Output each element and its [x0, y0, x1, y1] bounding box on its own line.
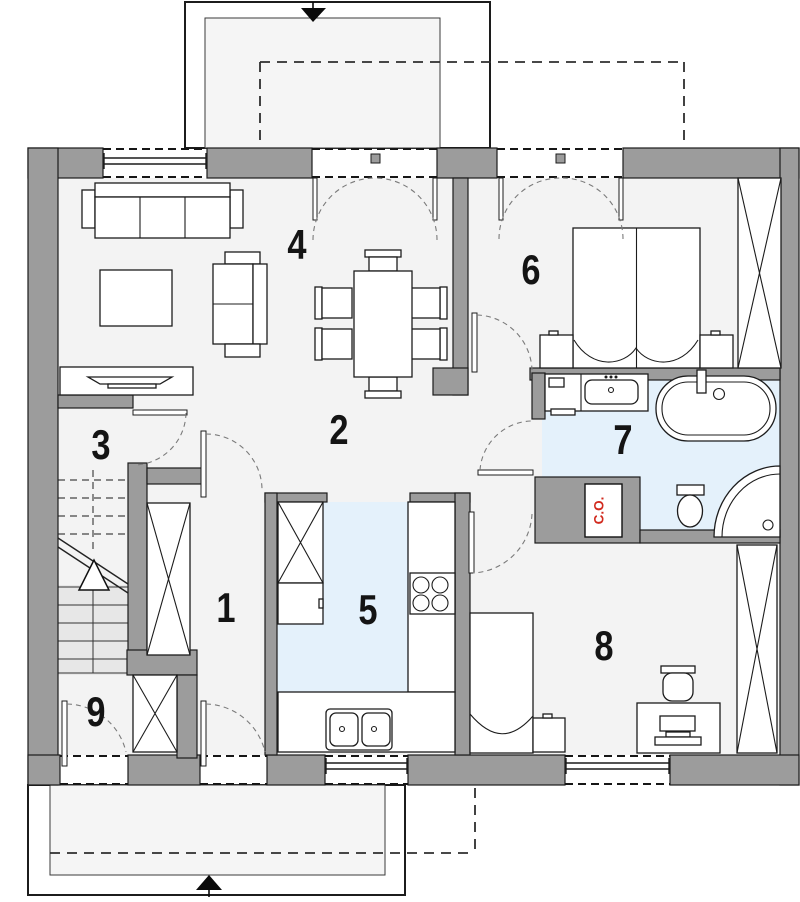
- top-opening-dashes: [103, 149, 623, 177]
- central-partition-wall: [453, 178, 468, 395]
- tub-tap: [697, 370, 706, 393]
- tv: [88, 377, 172, 384]
- terrace-door-knob: [371, 154, 380, 163]
- toilet: [677, 485, 704, 527]
- monitor: [660, 716, 695, 731]
- hob: [410, 573, 455, 614]
- kitchen-window: [325, 758, 408, 774]
- left-exterior-wall: [28, 148, 58, 785]
- nightstand: [700, 335, 733, 368]
- room-label-4: 4: [287, 222, 307, 269]
- top-terrace: [185, 2, 490, 148]
- wardrobe-bedroom6: [738, 178, 781, 368]
- right-exterior-wall: [780, 148, 799, 785]
- desk-chair: [663, 673, 693, 701]
- room-label-9: 9: [86, 689, 105, 736]
- bedroom-door-knob: [556, 154, 565, 163]
- room-label-2: 2: [329, 407, 348, 454]
- dining-table: [354, 271, 412, 377]
- sofa: [82, 183, 243, 238]
- nightstand: [540, 335, 573, 368]
- bottom-terrace: [28, 785, 405, 895]
- living-room-window: [103, 153, 207, 169]
- armchair: [213, 252, 267, 357]
- room-label-3: 3: [91, 422, 110, 469]
- heating-unit-label: C.O.: [592, 497, 607, 525]
- single-bed: [470, 613, 533, 753]
- room8-window: [565, 758, 670, 774]
- vanity-washbasin: [545, 374, 648, 415]
- room-label-8: 8: [594, 623, 613, 670]
- nightstand: [533, 718, 565, 752]
- bathtub: [656, 370, 776, 441]
- room-label-1: 1: [216, 585, 235, 632]
- wardrobe-corridor: [147, 503, 190, 655]
- heating-unit: C.O.: [585, 484, 622, 537]
- floor-plan-page: C.O.: [0, 0, 800, 902]
- desk-chair-back: [661, 666, 695, 673]
- room-label-5: 5: [358, 587, 377, 634]
- floor-plan-drawing: C.O.: [0, 0, 800, 902]
- room-label-6: 6: [521, 247, 540, 294]
- tv-sideboard: [60, 367, 193, 395]
- wardrobe-vestibule: [133, 675, 177, 752]
- keyboard: [655, 737, 701, 745]
- coffee-table: [100, 270, 172, 326]
- room-label-7: 7: [613, 417, 632, 464]
